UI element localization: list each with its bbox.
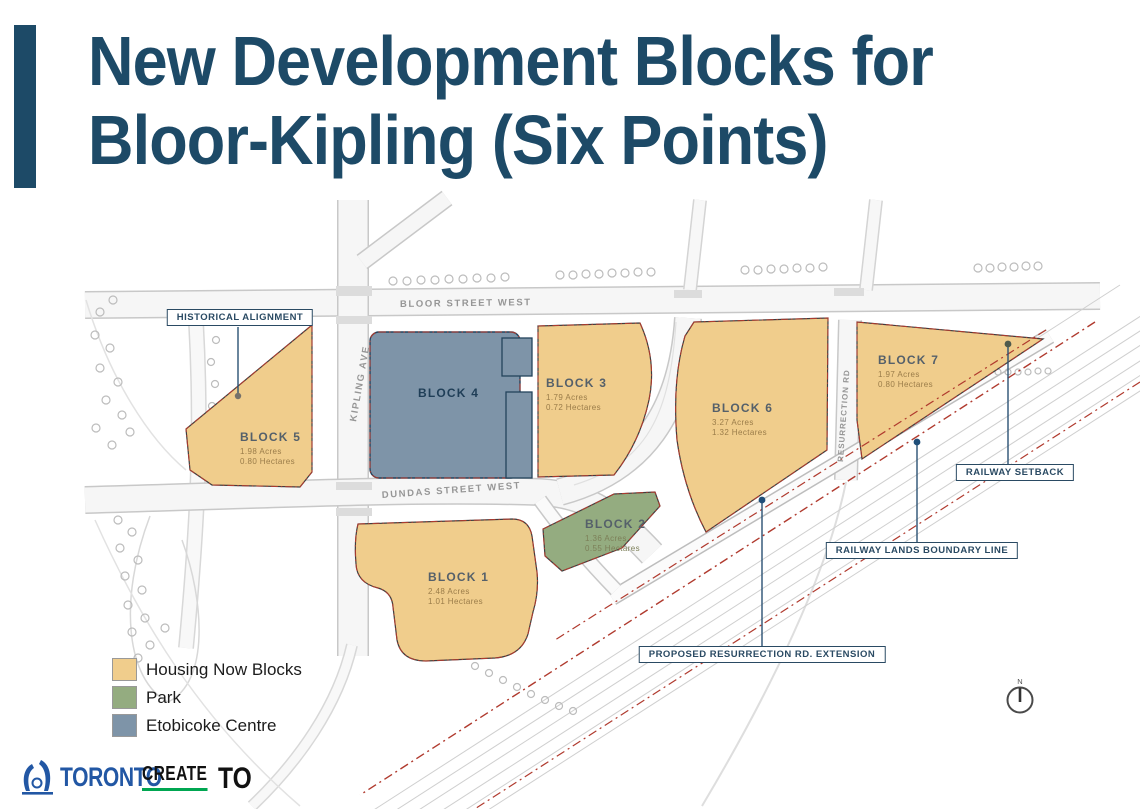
block-4-notch-lower [506, 392, 532, 478]
north-compass-icon: N [1008, 677, 1033, 713]
svg-text:0.80 Hectares: 0.80 Hectares [878, 380, 933, 389]
block-4-shape [370, 332, 520, 478]
svg-text:2.48 Acres: 2.48 Acres [428, 587, 470, 596]
legend-swatch-etobicoke-centre [112, 714, 137, 737]
svg-text:BLOCK 4: BLOCK 4 [418, 386, 479, 400]
createto-create-text: CREATE [142, 763, 207, 791]
callout-proposed-resurrection-extension: PROPOSED RESURRECTION RD. EXTENSION [639, 646, 886, 663]
svg-text:BLOCK 5: BLOCK 5 [240, 430, 301, 444]
svg-text:0.80 Hectares: 0.80 Hectares [240, 457, 295, 466]
svg-text:1.98 Acres: 1.98 Acres [240, 447, 282, 456]
legend-swatch-park [112, 686, 137, 709]
callout-railway-lands-boundary: RAILWAY LANDS BOUNDARY LINE [826, 542, 1018, 559]
svg-text:BLOCK 1: BLOCK 1 [428, 570, 489, 584]
svg-text:0.72 Hectares: 0.72 Hectares [546, 403, 601, 412]
legend-label-etobicoke-centre: Etobicoke Centre [146, 716, 276, 736]
street-label-bloor: BLOOR STREET WEST [400, 297, 532, 310]
svg-text:1.36 Acres: 1.36 Acres [585, 534, 627, 543]
legend-swatch-housing-now [112, 658, 137, 681]
legend-item-park: Park [112, 686, 302, 709]
legend-item-etobicoke-centre: Etobicoke Centre [112, 714, 302, 737]
compass-north-label: N [1017, 677, 1022, 686]
svg-text:1.97 Acres: 1.97 Acres [878, 370, 920, 379]
block-4-label: BLOCK 4 [418, 386, 479, 400]
svg-text:BLOCK 3: BLOCK 3 [546, 376, 607, 390]
legend-label-housing-now: Housing Now Blocks [146, 660, 302, 680]
slide: New Development Blocks for Bloor-Kipling… [0, 0, 1140, 809]
crosswalk [336, 286, 372, 296]
legend-item-housing-now: Housing Now Blocks [112, 658, 302, 681]
svg-text:1.01 Hectares: 1.01 Hectares [428, 597, 483, 606]
legend-label-park: Park [146, 688, 181, 708]
toronto-cityhall-icon [18, 757, 56, 797]
map-legend: Housing Now Blocks Park Etobicoke Centre [112, 658, 302, 742]
svg-text:1.79 Acres: 1.79 Acres [546, 393, 588, 402]
svg-text:BLOCK 6: BLOCK 6 [712, 401, 773, 415]
svg-text:BLOCK 2: BLOCK 2 [585, 517, 646, 531]
createto-to-text: TO [218, 766, 252, 792]
callout-historical-alignment: HISTORICAL ALIGNMENT [167, 309, 313, 326]
svg-text:3.27 Acres: 3.27 Acres [712, 418, 754, 427]
block-4-notch-upper [502, 338, 532, 376]
createto-logo: CREATE TO [142, 763, 259, 791]
callout-railway-setback: RAILWAY SETBACK [956, 464, 1074, 481]
svg-text:BLOCK 7: BLOCK 7 [878, 353, 939, 367]
svg-text:1.32 Hectares: 1.32 Hectares [712, 428, 767, 437]
svg-text:0.55 Hectares: 0.55 Hectares [585, 544, 640, 553]
